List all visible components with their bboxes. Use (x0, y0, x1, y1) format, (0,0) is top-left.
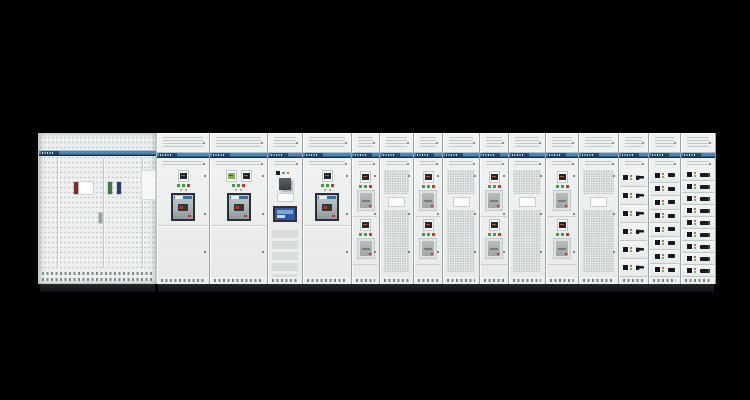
vent-panel-sub (445, 159, 477, 168)
side-panel-plate (141, 170, 156, 200)
drawer-unit (620, 259, 647, 277)
brand-logo-icon (270, 153, 288, 157)
drawer-unit (650, 264, 679, 278)
indicator-led-row (556, 185, 569, 188)
section-drawers-2 (649, 133, 681, 284)
section-acb-1 (157, 133, 210, 284)
digital-meter (489, 219, 500, 231)
mccb-breaker (553, 238, 571, 259)
vent-slats (386, 137, 407, 149)
section-feeder-4 (546, 133, 579, 284)
vent-panel-sub (482, 159, 506, 168)
led-indicator (694, 211, 696, 213)
meter-display (324, 173, 331, 179)
trip-button (332, 215, 335, 217)
led-indicator (694, 196, 696, 198)
drawer-display (655, 186, 660, 191)
brand-band (210, 152, 267, 158)
drawer-handle-icon (700, 245, 710, 249)
door-label (74, 182, 78, 194)
vent-panel-sub (305, 159, 349, 168)
cable-entry-strip (580, 277, 617, 284)
cable-entry-strip (547, 277, 577, 284)
meter-display (559, 174, 566, 180)
hinge-dot (262, 175, 264, 177)
drawer-display (687, 232, 692, 237)
meter-display (425, 222, 432, 228)
hinge-dot (573, 213, 575, 215)
drawer-display (687, 184, 692, 189)
cabinet-top-edge (268, 133, 302, 134)
vent-slats (515, 161, 539, 166)
brand-logo-icon (651, 153, 669, 157)
led-indicator (291, 172, 294, 175)
led-indicator (694, 220, 696, 222)
meter-display (491, 222, 498, 228)
led-indicator (662, 230, 664, 232)
mccb-breaker (553, 190, 571, 211)
led-indicator (694, 232, 696, 234)
vent-slats (358, 161, 373, 166)
vent-panel-top (511, 135, 543, 151)
drawer-led-pair (630, 211, 632, 216)
vent-slats (163, 137, 203, 149)
drawer-display (623, 265, 628, 270)
led-indicator (561, 185, 564, 188)
cabinet-top-edge (546, 133, 578, 134)
drawer-unit (682, 181, 714, 193)
ventilated-mesh-door (384, 210, 409, 272)
meter-row (226, 170, 252, 182)
drawer-display (687, 196, 692, 201)
drawer-unit (620, 205, 647, 223)
brand-logo-icon (41, 151, 59, 155)
led-indicator (364, 185, 367, 188)
drawer-handle-icon (700, 185, 710, 189)
vent-panel-top (212, 135, 265, 151)
drawer-led-pair (694, 244, 696, 249)
brand-band (380, 152, 413, 158)
meter-display (362, 222, 369, 228)
drawer-led-pair (694, 232, 696, 237)
vent-panel-sub (212, 159, 265, 168)
vent-panel-top (445, 135, 477, 151)
vent-slats (486, 137, 502, 149)
led-indicator (694, 247, 696, 249)
drawer-led-pair (694, 268, 696, 273)
vent-slats (687, 161, 709, 166)
hmi-touchscreen (273, 206, 297, 222)
meter-row (360, 171, 371, 183)
equipment-area (481, 169, 507, 277)
cabinet-top-edge (303, 133, 351, 134)
vent-slats (687, 137, 709, 149)
vent-slats (216, 161, 261, 166)
drawer-display (687, 208, 692, 213)
led-indicator (694, 187, 696, 189)
led-indicator (662, 240, 664, 242)
hinge-dot (503, 251, 505, 253)
meter-display (180, 173, 187, 179)
vent-slats (625, 137, 642, 149)
digital-meter (557, 171, 568, 183)
led-indicator (694, 244, 696, 246)
mccb-breaker (485, 238, 503, 259)
cabinet-top-edge (509, 133, 545, 134)
breaker-label-stripe (230, 196, 248, 199)
led-indicator (364, 233, 367, 236)
section-mesh-4 (579, 133, 619, 284)
meter-row (489, 219, 500, 231)
door-divider (211, 225, 266, 226)
switchgear-lineup-photo (0, 0, 750, 400)
meter-row (360, 219, 371, 231)
drawer-led-pair (630, 247, 632, 252)
drawer-display (687, 268, 692, 273)
cable-entry-strip (353, 277, 378, 284)
drawer-display (655, 213, 660, 218)
led-indicator (662, 213, 664, 215)
ventilated-mesh-door (447, 210, 475, 272)
drawer-handle-icon (668, 241, 675, 245)
digital-meter (423, 171, 434, 183)
led-indicator (630, 232, 632, 234)
pushbutton-row (180, 189, 187, 191)
hinge-dot (540, 213, 542, 215)
led-indicator (187, 184, 190, 187)
equipment-area (353, 169, 378, 277)
drawer-display (687, 244, 692, 249)
drawer-unit (650, 196, 679, 210)
drawer-handle-icon (668, 227, 675, 231)
drawer-handle-icon (700, 233, 710, 237)
led-indicator (694, 256, 696, 258)
vent-slats (216, 137, 261, 149)
drawer-unit (682, 205, 714, 217)
equipment-area (620, 169, 647, 277)
brand-logo-icon (382, 153, 400, 157)
vent-slats (625, 161, 642, 166)
led-indicator (630, 229, 632, 231)
vent-slats (449, 161, 473, 166)
led-indicator (427, 185, 430, 188)
led-indicator (630, 214, 632, 216)
meter-display (491, 174, 498, 180)
led-indicator (422, 185, 425, 188)
section-drawers-1 (619, 133, 649, 284)
ventilated-mesh-panel (583, 170, 614, 194)
drawer-led-pair (694, 196, 696, 201)
ventilated-mesh-door (583, 210, 614, 272)
vent-panel-top (416, 135, 440, 151)
led-indicator (630, 193, 632, 195)
drawer-unit (682, 229, 714, 241)
meter-row (423, 219, 434, 231)
mccb-breaker (419, 190, 437, 211)
breaker-window (234, 204, 244, 211)
meter-display (425, 174, 432, 180)
ventilated-mesh-panel (447, 170, 475, 194)
drawer-handle-icon (700, 173, 710, 177)
vent-panel-top (651, 135, 678, 151)
vent-panel-top (159, 135, 207, 151)
vent-panel-sub (511, 159, 543, 168)
hinge-dot (540, 175, 542, 177)
perforated-cabinet (38, 133, 157, 284)
mccb-face (422, 193, 434, 208)
brand-logo-icon (416, 153, 434, 157)
led-indicator (422, 233, 425, 236)
vent-slats (420, 137, 436, 149)
led-indicator (561, 233, 564, 236)
led-indicator (630, 247, 632, 249)
led-indicator (498, 185, 501, 188)
brand-logo-icon (548, 153, 566, 157)
ventilated-mesh-panel (384, 170, 409, 194)
vent-panel-sub (548, 159, 576, 168)
equipment-area (304, 169, 350, 277)
drawer-led-pair (630, 229, 632, 234)
equipment-area (580, 169, 617, 277)
digital-meter (241, 170, 252, 182)
equipment-area (269, 169, 301, 277)
vent-panel-sub (270, 159, 300, 168)
led-indicator (630, 196, 632, 198)
cable-entry-strip (682, 277, 714, 284)
drawer-display (687, 220, 692, 225)
led-indicator (630, 265, 632, 267)
led-indicator (369, 233, 372, 236)
drawer-unit (620, 169, 647, 187)
digital-meter (489, 171, 500, 183)
vent-panel-sub (621, 159, 646, 168)
breaker-window (322, 204, 332, 211)
hinge-dot (437, 251, 439, 253)
brand-logo-icon (305, 153, 323, 157)
cabinet-top-edge (414, 133, 442, 134)
vent-slats (358, 137, 373, 149)
pushbutton-row (324, 189, 331, 191)
section-hmi (268, 133, 303, 284)
brand-band (681, 152, 715, 158)
vent-panel-sub (416, 159, 440, 168)
digital-meter (226, 170, 237, 182)
brand-band (619, 152, 648, 158)
drawer-led-pair (694, 208, 696, 213)
door-label (79, 182, 93, 194)
drawer-display (623, 193, 628, 198)
drawer-led-pair (630, 193, 632, 198)
drawer-handle-icon (668, 187, 675, 191)
mccb-face (422, 241, 434, 256)
led-indicator (630, 268, 632, 270)
section-mesh-1 (380, 133, 414, 284)
feeder-tier (353, 217, 378, 265)
cable-entry-strip (481, 277, 507, 284)
led-indicator (182, 184, 185, 187)
indicator-led-row (321, 184, 334, 187)
hinge-dot (613, 251, 615, 253)
hinge-dot (204, 251, 206, 253)
brand-band (352, 152, 379, 158)
led-indicator (662, 203, 664, 205)
plinth (158, 284, 714, 292)
brand-logo-icon (445, 153, 463, 157)
brand-band (443, 152, 479, 158)
led-indicator (630, 211, 632, 213)
door-divider (158, 225, 208, 226)
nameplate (453, 197, 470, 207)
drawer-led-pair (662, 227, 664, 232)
drawer-display (687, 256, 692, 261)
led-indicator (282, 172, 285, 175)
hinge-dot (346, 213, 348, 215)
drawer-handle-icon (636, 265, 644, 270)
cable-entry-strip (211, 277, 266, 284)
drawer-unit (682, 253, 714, 265)
hinge-dot (540, 251, 542, 253)
breaker-window (178, 204, 188, 211)
pushbutton-row (235, 189, 242, 191)
drawer-display (655, 240, 660, 245)
led-indicator (630, 175, 632, 177)
drawer-led-pair (694, 184, 696, 189)
drawer-handle-icon (668, 254, 675, 258)
vent-panel-sub (354, 159, 377, 168)
drawer-led-pair (694, 220, 696, 225)
vent-panel-top (621, 135, 646, 151)
digital-meter (360, 171, 371, 183)
hinge-dot (474, 175, 476, 177)
drawer-display (623, 229, 628, 234)
vent-slats (552, 161, 572, 166)
drawer-handle-icon (636, 247, 644, 252)
section-feeder-2 (414, 133, 443, 284)
feeder-tier (481, 217, 507, 265)
cabinet-top-edge (210, 133, 267, 134)
brand-band (480, 152, 508, 158)
vent-panel-top (581, 135, 616, 151)
cable-entry-strip (269, 277, 301, 284)
drawer-led-pair (694, 256, 696, 261)
trip-button (188, 215, 191, 217)
led-indicator (662, 173, 664, 175)
door-handle (99, 213, 102, 223)
led-indicator (493, 233, 496, 236)
vent-slats (274, 161, 296, 166)
brand-logo-icon (159, 153, 177, 157)
hinge-dot (408, 251, 410, 253)
led-indicator (662, 257, 664, 259)
led-indicator (630, 178, 632, 180)
vent-slats (309, 137, 345, 149)
led-indicator (662, 270, 664, 272)
drawer-led-pair (630, 175, 632, 180)
led-indicator (694, 175, 696, 177)
digital-meter (423, 219, 434, 231)
meter-row (557, 219, 568, 231)
section-acb-2 (210, 133, 268, 284)
ventilated-mesh-panel (513, 170, 541, 194)
vent-slats (655, 137, 674, 149)
hinge-dot (204, 175, 206, 177)
led-indicator (177, 184, 180, 187)
hinge-dot (613, 175, 615, 177)
brand-band (509, 152, 545, 158)
mccb-face (556, 193, 568, 208)
cabinet-top-edge (619, 133, 648, 134)
aux-display (276, 171, 280, 175)
meter-display (559, 222, 566, 228)
air-circuit-breaker (315, 193, 339, 221)
drawer-led-pair (662, 200, 664, 205)
drawer-handle-icon (668, 173, 675, 177)
drawer-display (655, 173, 660, 178)
door-label (108, 182, 112, 194)
cabinet-top-edge (380, 133, 413, 134)
vent-panel-top (482, 135, 506, 151)
brand-logo-icon (482, 153, 500, 157)
led-indicator (493, 185, 496, 188)
mccb-face (360, 193, 372, 208)
drawer-display (655, 254, 660, 259)
led-indicator (694, 235, 696, 237)
controller-unit (279, 178, 291, 190)
led-indicator (287, 172, 290, 175)
vent-slats (585, 137, 612, 149)
mccb-face (556, 241, 568, 256)
hinge-dot (408, 175, 410, 177)
indicator-led-row (488, 185, 501, 188)
drawer-led-pair (694, 172, 696, 177)
indicator-led-row (422, 233, 435, 236)
mccb-breaker (485, 190, 503, 211)
drawer-led-pair (662, 240, 664, 245)
air-circuit-breaker (171, 193, 195, 221)
led-indicator (369, 185, 372, 188)
brand-logo-icon (621, 153, 639, 157)
vent-panel-sub (683, 159, 713, 168)
led-indicator (331, 184, 334, 187)
drawer-led-pair (630, 265, 632, 270)
led-indicator (242, 184, 245, 187)
meter-display (228, 173, 235, 179)
hinge-dot (474, 213, 476, 215)
drawer-handle-icon (636, 193, 644, 198)
hinge-dot (474, 251, 476, 253)
hinge-dot (573, 251, 575, 253)
brand-band (546, 152, 578, 158)
led-indicator (662, 216, 664, 218)
equipment-area (415, 169, 441, 277)
brand-band (414, 152, 442, 158)
plinth (40, 284, 155, 292)
hinge-dot (374, 251, 376, 253)
air-circuit-breaker (227, 193, 251, 221)
mccb-breaker (419, 238, 437, 259)
led-indicator (427, 233, 430, 236)
led-indicator (694, 172, 696, 174)
meter-row (489, 171, 500, 183)
drawer-display (623, 247, 628, 252)
led-indicator (662, 200, 664, 202)
drawer-led-pair (662, 186, 664, 191)
indicator-led-row (488, 233, 501, 236)
led-indicator (662, 254, 664, 256)
led-indicator (326, 184, 329, 187)
vent-slats (420, 161, 436, 166)
mccb-face (360, 241, 372, 256)
